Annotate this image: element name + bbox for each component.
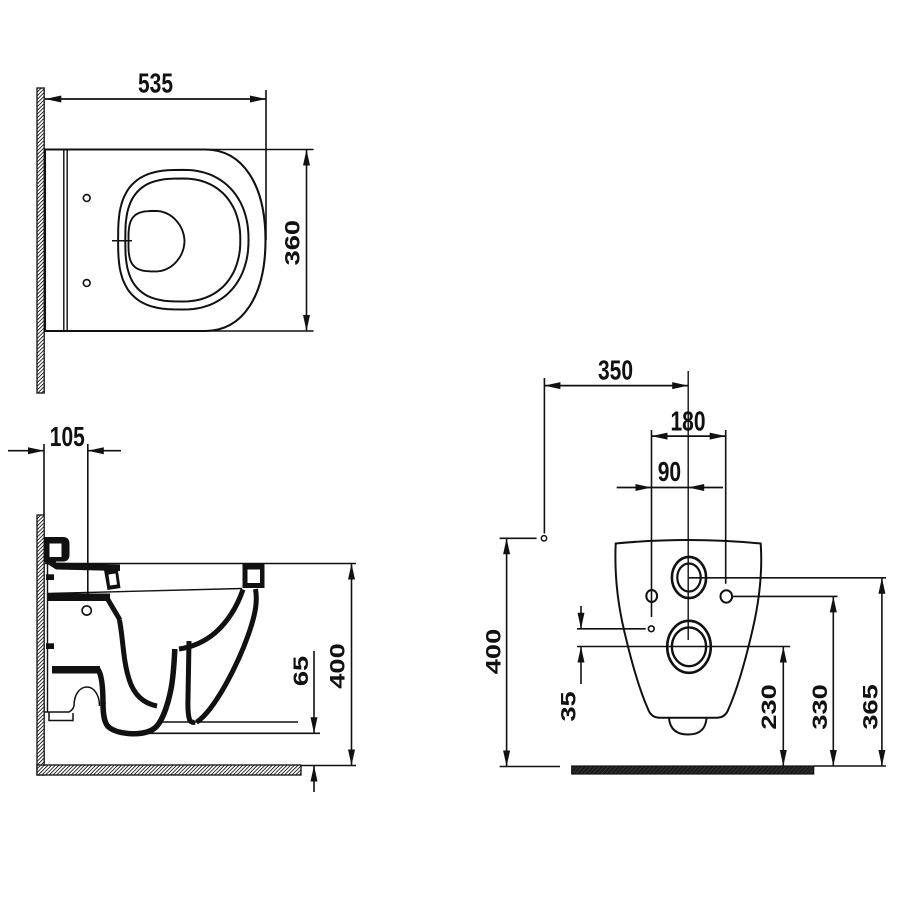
svg-text:400: 400 (483, 629, 506, 675)
svg-text:365: 365 (860, 684, 883, 730)
svg-text:65: 65 (290, 656, 313, 686)
svg-text:350: 350 (598, 356, 633, 386)
svg-text:35: 35 (558, 691, 581, 721)
svg-text:360: 360 (281, 220, 304, 266)
svg-text:535: 535 (138, 69, 173, 99)
svg-text:400: 400 (327, 643, 350, 689)
svg-text:105: 105 (50, 422, 85, 452)
svg-text:180: 180 (670, 407, 705, 437)
svg-text:330: 330 (809, 684, 832, 730)
svg-text:90: 90 (658, 457, 681, 487)
svg-text:230: 230 (758, 684, 781, 730)
